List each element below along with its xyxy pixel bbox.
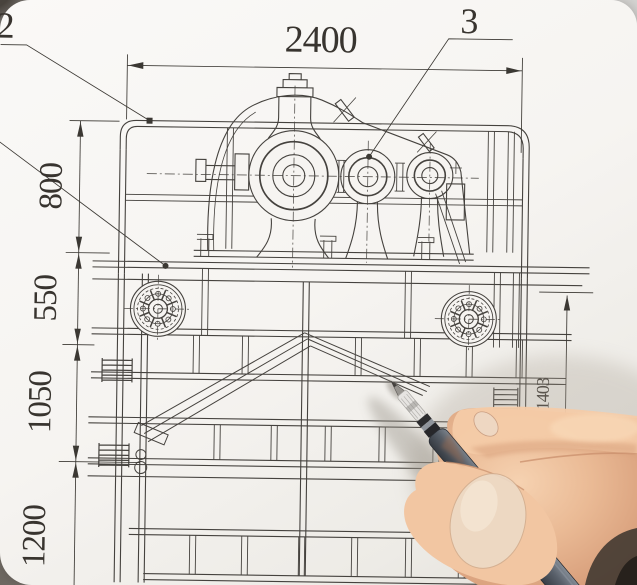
drawing-svg: 2400 2 3 800 550 1050 1200 1403 [0, 0, 637, 585]
dim-1200-label: 1200 [16, 504, 53, 567]
dim-1050-label: 1050 [22, 370, 59, 433]
dimension-top-2400 [126, 52, 522, 153]
brace-diagonals [134, 330, 431, 477]
photo-scene: 2400 2 3 800 550 1050 1200 1403 [0, 0, 637, 585]
stud-bolt-left [334, 97, 356, 122]
callout-3-label: 3 [460, 1, 478, 41]
leader-callout-3 [366, 38, 513, 162]
dimension-left-chain [57, 120, 144, 585]
dim-800-label: 800 [33, 162, 70, 209]
knuckle-highlight [550, 414, 637, 442]
sprocket-right [434, 285, 503, 354]
gearbox [146, 72, 481, 271]
pen-collar [397, 389, 427, 421]
dim-550-label: 550 [28, 274, 65, 321]
leader-callout-2 [0, 45, 154, 124]
sprocket-left [123, 274, 192, 343]
dim-top-label: 2400 [284, 19, 357, 62]
callout-2-label: 2 [0, 6, 14, 47]
leader-unlabeled [0, 142, 170, 269]
